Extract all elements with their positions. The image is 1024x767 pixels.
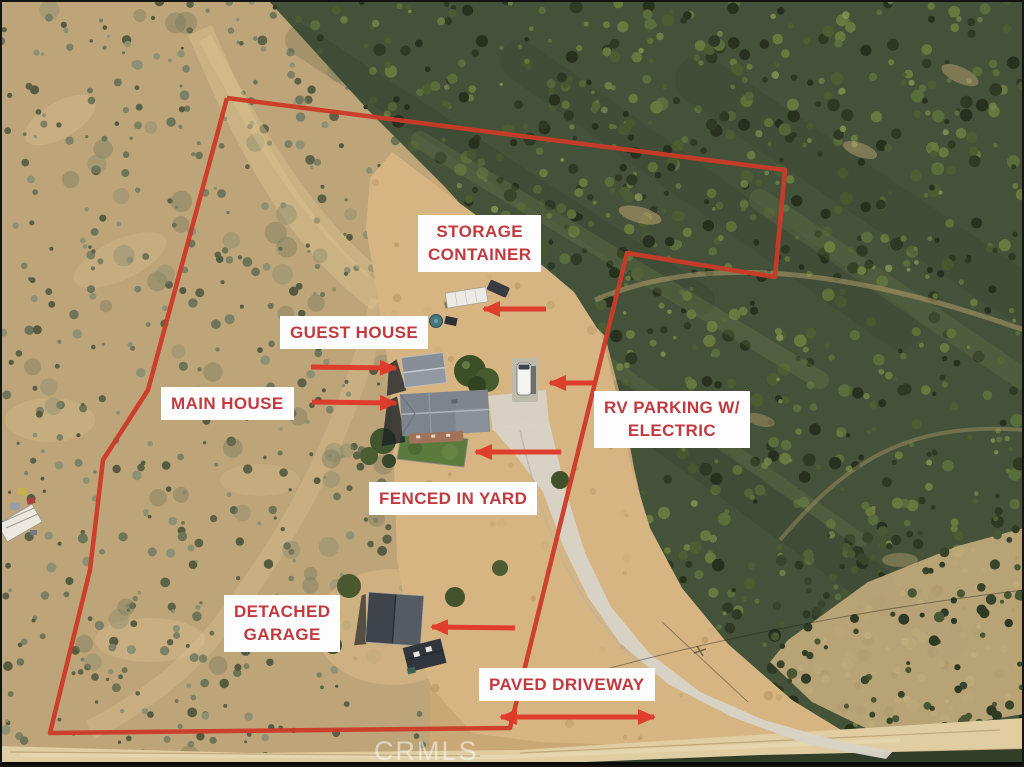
label-line: STORAGE [436, 220, 523, 243]
label-line: PAVED DRIVEWAY [489, 673, 645, 696]
label-line: DETACHED [234, 600, 330, 623]
label-rv-parking: RV PARKING W/ ELECTRIC [594, 391, 750, 448]
label-line: ELECTRIC [628, 419, 716, 442]
detached-garage-arrow [432, 627, 515, 628]
label-line: GUEST HOUSE [290, 321, 418, 344]
rv-shadow [531, 366, 536, 394]
main-house-arrow [312, 402, 396, 403]
annotated-aerial-photo: STORAGE CONTAINER GUEST HOUSE MAIN HOUSE… [0, 0, 1024, 767]
label-line: CONTAINER [428, 243, 531, 266]
guest-house-arrow [311, 367, 396, 368]
water-tank-cap [434, 319, 438, 323]
lawn-patch [442, 444, 458, 460]
label-guest-house: GUEST HOUSE [280, 316, 428, 349]
label-storage-container: STORAGE CONTAINER [418, 215, 541, 272]
label-line: MAIN HOUSE [171, 392, 284, 415]
label-line: GARAGE [244, 623, 321, 646]
label-detached-garage: DETACHED GARAGE [224, 595, 340, 652]
detached-garage [354, 591, 424, 649]
rv-windshield [519, 365, 530, 370]
label-fenced-yard: FENCED IN YARD [369, 482, 537, 515]
label-line: FENCED IN YARD [379, 487, 527, 510]
label-paved-driveway: PAVED DRIVEWAY [479, 668, 655, 701]
crmls-watermark: CRMLS [374, 736, 479, 767]
aerial-photo [0, 0, 1024, 767]
label-line: RV PARKING W/ [604, 396, 740, 419]
label-main-house: MAIN HOUSE [161, 387, 294, 420]
